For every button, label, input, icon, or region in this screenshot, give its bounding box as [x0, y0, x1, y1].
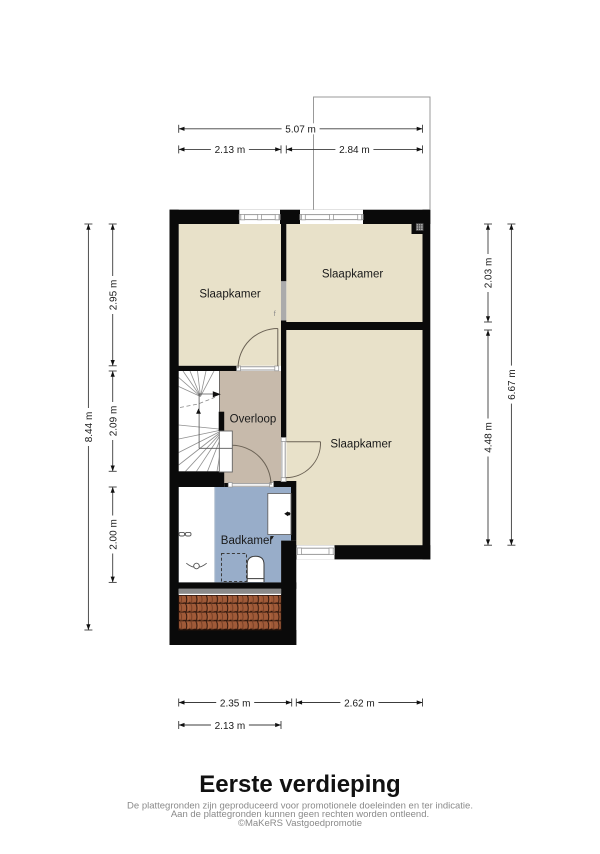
- svg-text:Slaapkamer: Slaapkamer: [330, 439, 392, 451]
- svg-text:Eerste verdieping: Eerste verdieping: [199, 771, 400, 798]
- svg-text:4.48 m: 4.48 m: [484, 422, 495, 453]
- svg-text:6.67 m: 6.67 m: [507, 369, 518, 400]
- svg-text:Badkamer: Badkamer: [221, 535, 274, 547]
- svg-text:f: f: [274, 311, 276, 318]
- svg-text:2.95 m: 2.95 m: [108, 280, 119, 311]
- svg-text:©MaKeRS Vastgoedpromotie: ©MaKeRS Vastgoedpromotie: [238, 818, 362, 829]
- svg-text:2.13 m: 2.13 m: [215, 145, 246, 156]
- svg-text:2.62 m: 2.62 m: [344, 698, 375, 709]
- svg-text:5.07 m: 5.07 m: [285, 125, 316, 136]
- svg-text:2.35 m: 2.35 m: [220, 698, 251, 709]
- svg-text:Slaapkamer: Slaapkamer: [322, 269, 384, 281]
- svg-text:2.84 m: 2.84 m: [339, 145, 370, 156]
- svg-text:2.13 m: 2.13 m: [215, 721, 246, 732]
- svg-text:2.00 m: 2.00 m: [108, 519, 119, 550]
- svg-text:2.09 m: 2.09 m: [108, 406, 119, 437]
- svg-text:8.44 m: 8.44 m: [84, 412, 95, 443]
- svg-text:Slaapkamer: Slaapkamer: [199, 289, 261, 301]
- svg-text:2.03 m: 2.03 m: [484, 258, 495, 289]
- svg-text:Overloop: Overloop: [230, 414, 277, 426]
